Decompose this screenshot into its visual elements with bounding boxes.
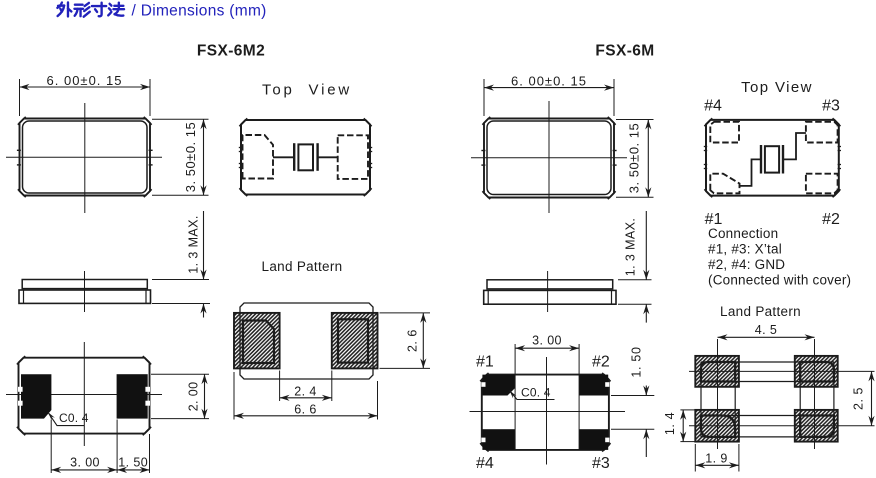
svg-text:6. 00±0. 15: 6. 00±0. 15: [47, 73, 123, 88]
svg-text:2. 4: 2. 4: [294, 384, 316, 398]
svg-text:FSX-6M2: FSX-6M2: [197, 43, 265, 60]
svg-text:C0. 4: C0. 4: [521, 386, 551, 400]
svg-text:/ Dimensions (mm): / Dimensions (mm): [132, 3, 267, 20]
svg-text:Connection: Connection: [708, 226, 778, 241]
svg-text:3. 50±0. 15: 3. 50±0. 15: [627, 123, 642, 193]
svg-text:6. 00±0. 15: 6. 00±0. 15: [511, 74, 587, 89]
svg-text:2. 5: 2. 5: [852, 387, 866, 410]
svg-text:C0. 4: C0. 4: [59, 411, 89, 425]
svg-text:#1, #3: X’tal: #1, #3: X’tal: [708, 242, 782, 257]
svg-text:#4: #4: [476, 455, 494, 472]
svg-text:Land Pattern: Land Pattern: [720, 304, 801, 319]
svg-text:#2, #4: GND: #2, #4: GND: [708, 257, 785, 272]
svg-text:1. 3 MAX.: 1. 3 MAX.: [624, 218, 638, 276]
svg-text:#4: #4: [704, 98, 722, 115]
svg-text:#3: #3: [822, 98, 840, 115]
svg-text:#3: #3: [592, 455, 610, 472]
svg-text:4. 5: 4. 5: [755, 323, 777, 337]
svg-text:#2: #2: [592, 354, 610, 371]
svg-text:3. 00: 3. 00: [532, 334, 562, 348]
svg-text:1. 3 MAX.: 1. 3 MAX.: [187, 215, 201, 273]
svg-text:1. 50: 1. 50: [118, 456, 148, 470]
svg-text:6. 6: 6. 6: [294, 402, 316, 416]
svg-text:Top View: Top View: [741, 79, 813, 96]
svg-text:#2: #2: [822, 211, 840, 228]
svg-text:1. 4: 1. 4: [663, 412, 677, 435]
svg-text:Land Pattern: Land Pattern: [262, 259, 343, 274]
svg-text:1. 50: 1. 50: [630, 346, 644, 377]
svg-text:3. 50±0. 15: 3. 50±0. 15: [183, 122, 198, 192]
svg-text:3. 00: 3. 00: [70, 456, 100, 470]
svg-text:FSX-6M: FSX-6M: [595, 43, 654, 60]
svg-text:2. 00: 2. 00: [187, 381, 201, 411]
svg-text:(Connected with cover): (Connected with cover): [708, 273, 851, 288]
svg-text:2. 6: 2. 6: [406, 329, 420, 352]
svg-text:#1: #1: [476, 354, 494, 371]
svg-text:1. 9: 1. 9: [705, 452, 727, 466]
svg-text:Top View: Top View: [262, 82, 352, 99]
